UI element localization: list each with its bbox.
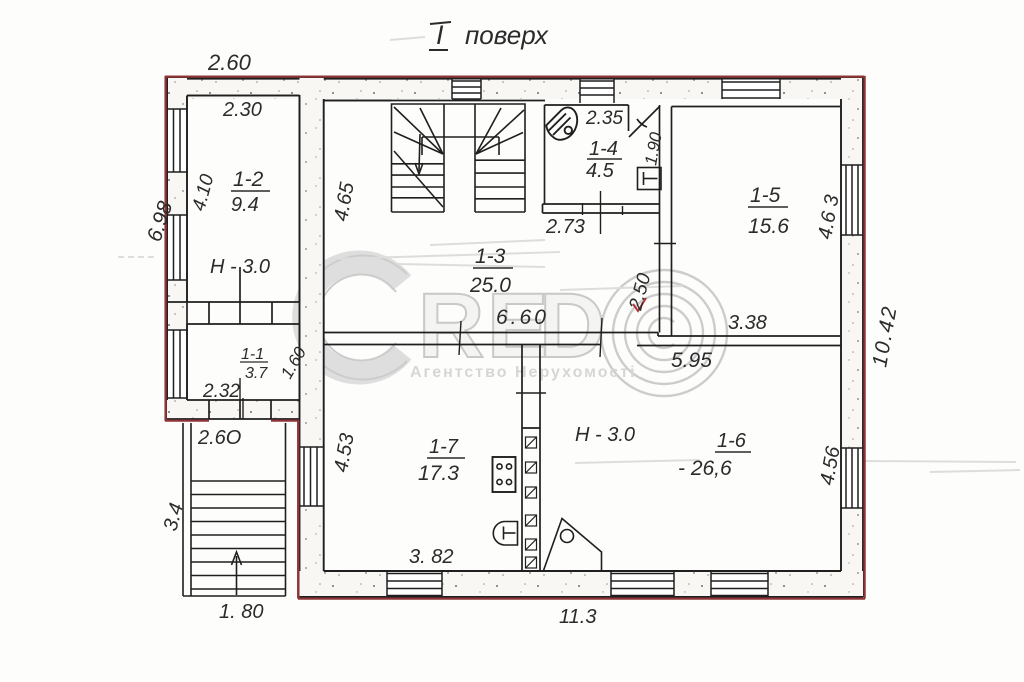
svg-text:2.30: 2.30 xyxy=(222,99,262,121)
svg-text:I: I xyxy=(436,20,444,50)
svg-text:2.35: 2.35 xyxy=(585,108,623,129)
svg-text:11.3: 11.3 xyxy=(559,606,596,628)
svg-text:H - 3.0: H - 3.0 xyxy=(575,424,635,446)
svg-text:1-7: 1-7 xyxy=(429,436,459,458)
svg-text:3. 82: 3. 82 xyxy=(409,546,453,568)
svg-text:6.60: 6.60 xyxy=(496,306,549,329)
svg-text:2.32: 2.32 xyxy=(202,381,240,402)
svg-text:1. 80: 1. 80 xyxy=(219,601,263,623)
svg-text:4.5: 4.5 xyxy=(586,160,615,182)
svg-text:H - 3.0: H - 3.0 xyxy=(210,256,270,278)
svg-text:15.6: 15.6 xyxy=(748,215,789,238)
svg-text:5.95: 5.95 xyxy=(671,349,712,372)
svg-text:3.7: 3.7 xyxy=(245,365,268,382)
svg-text:1-1: 1-1 xyxy=(241,346,264,363)
svg-text:3.38: 3.38 xyxy=(728,312,767,334)
svg-text:17.3: 17.3 xyxy=(418,462,459,485)
svg-text:поверх: поверх xyxy=(465,20,549,50)
svg-text:2.60: 2.60 xyxy=(207,50,252,75)
svg-text:1-5: 1-5 xyxy=(750,184,781,207)
svg-text:2.6О: 2.6О xyxy=(197,427,241,449)
svg-text:2.73: 2.73 xyxy=(545,216,585,238)
svg-text:25.0: 25.0 xyxy=(469,274,511,297)
svg-text:1-2: 1-2 xyxy=(233,168,264,191)
svg-text:1-3: 1-3 xyxy=(475,245,506,268)
svg-text:9.4: 9.4 xyxy=(231,194,259,216)
svg-text:- 26,6: - 26,6 xyxy=(678,457,732,480)
svg-text:Агентство Нерухомості: Агентство Нерухомості xyxy=(410,364,637,381)
svg-text:1-4: 1-4 xyxy=(589,138,618,160)
svg-text:1-6: 1-6 xyxy=(717,430,747,452)
